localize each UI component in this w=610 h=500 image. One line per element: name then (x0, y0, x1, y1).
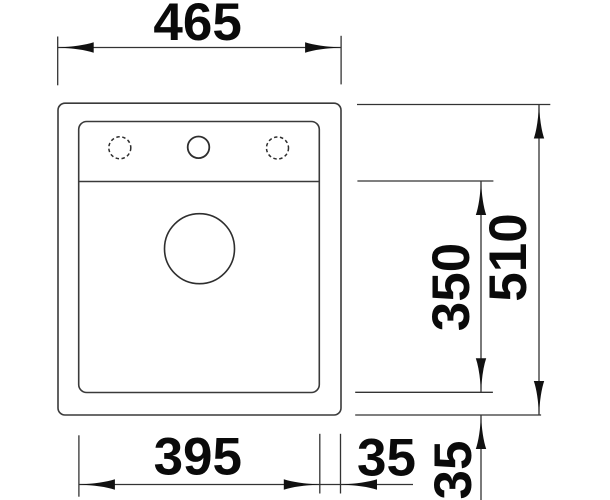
svg-text:465: 465 (153, 0, 241, 52)
svg-text:510: 510 (479, 213, 538, 301)
svg-text:35: 35 (424, 441, 483, 500)
svg-text:395: 395 (154, 428, 242, 487)
svg-text:350: 350 (422, 243, 481, 331)
svg-text:35: 35 (357, 428, 416, 487)
